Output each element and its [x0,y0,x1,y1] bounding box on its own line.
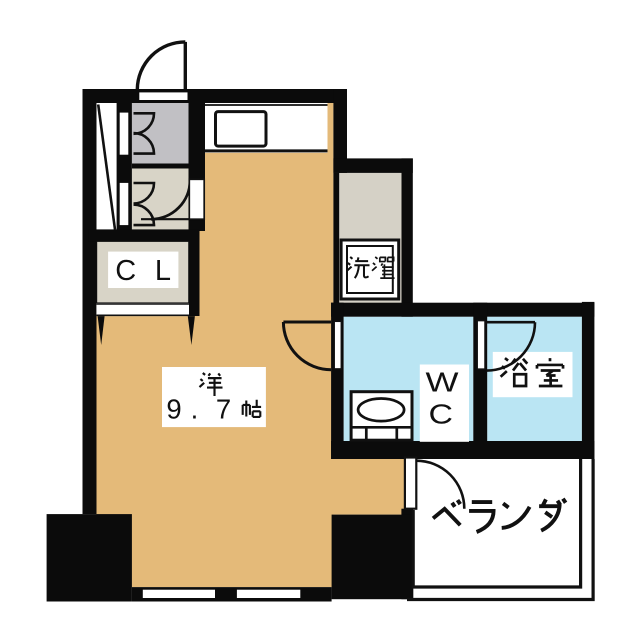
svg-text:9: 9 [166,394,181,425]
svg-text:C: C [429,399,454,430]
svg-text:C: C [115,255,136,287]
svg-text:W: W [426,366,460,397]
svg-text:L: L [155,255,171,287]
svg-text:.: . [191,394,199,425]
svg-text:7: 7 [216,394,231,425]
